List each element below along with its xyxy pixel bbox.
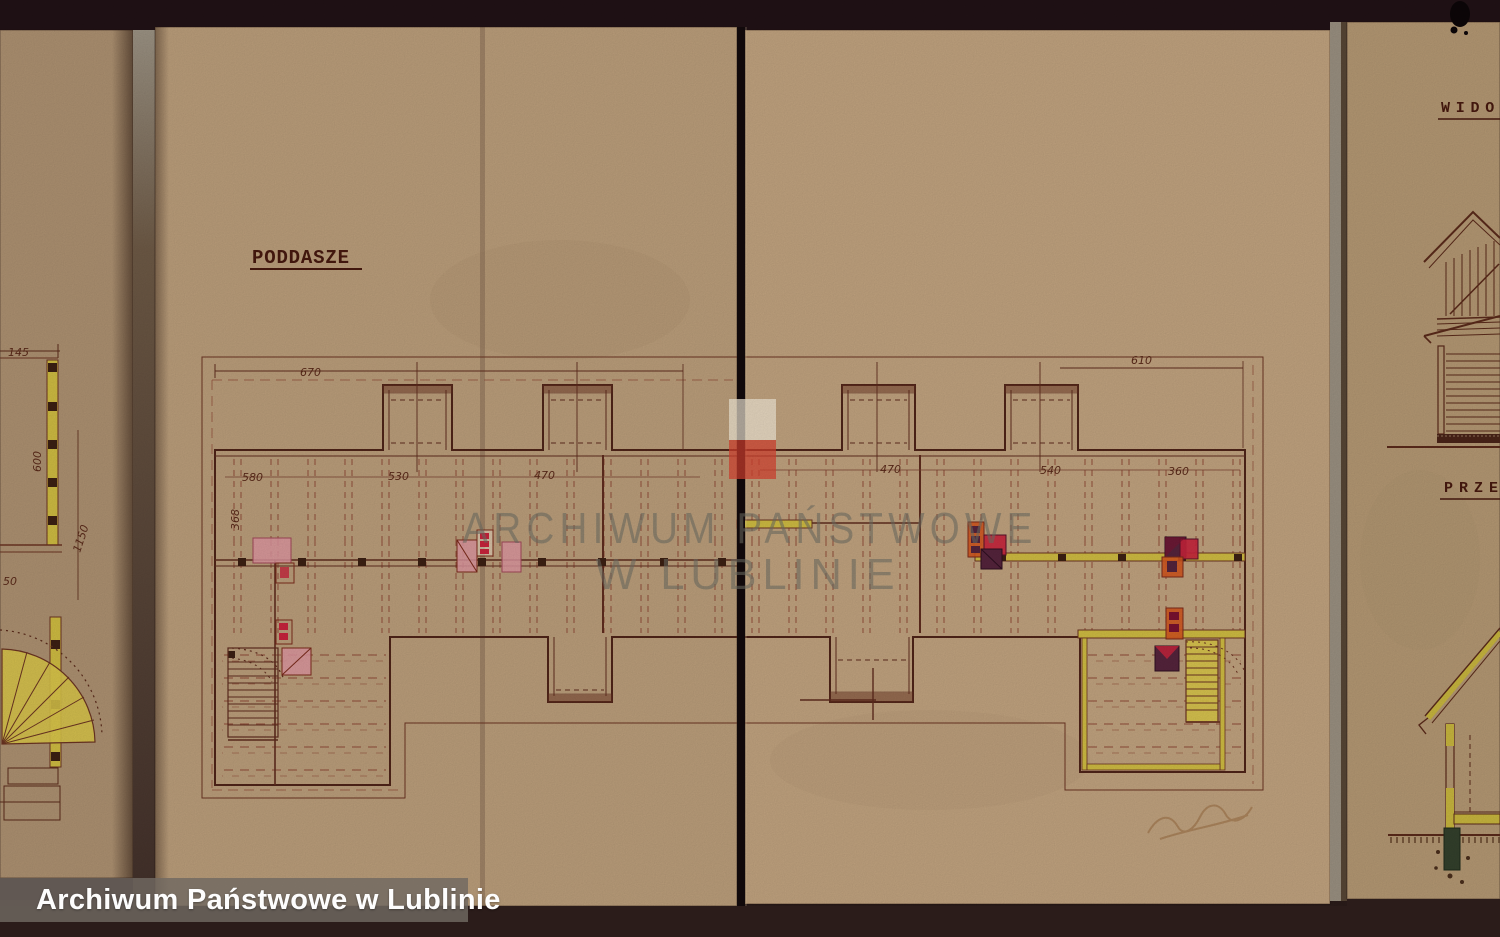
- caption-text: Archiwum Państwowe w Lublinie: [0, 884, 501, 917]
- scan-image: 145 600 1150 50: [0, 0, 1500, 937]
- caption-bar: Archiwum Państwowe w Lublinie: [0, 878, 468, 922]
- paper-grain: [0, 0, 1500, 937]
- archival-scan-viewer: 145 600 1150 50: [0, 0, 1500, 937]
